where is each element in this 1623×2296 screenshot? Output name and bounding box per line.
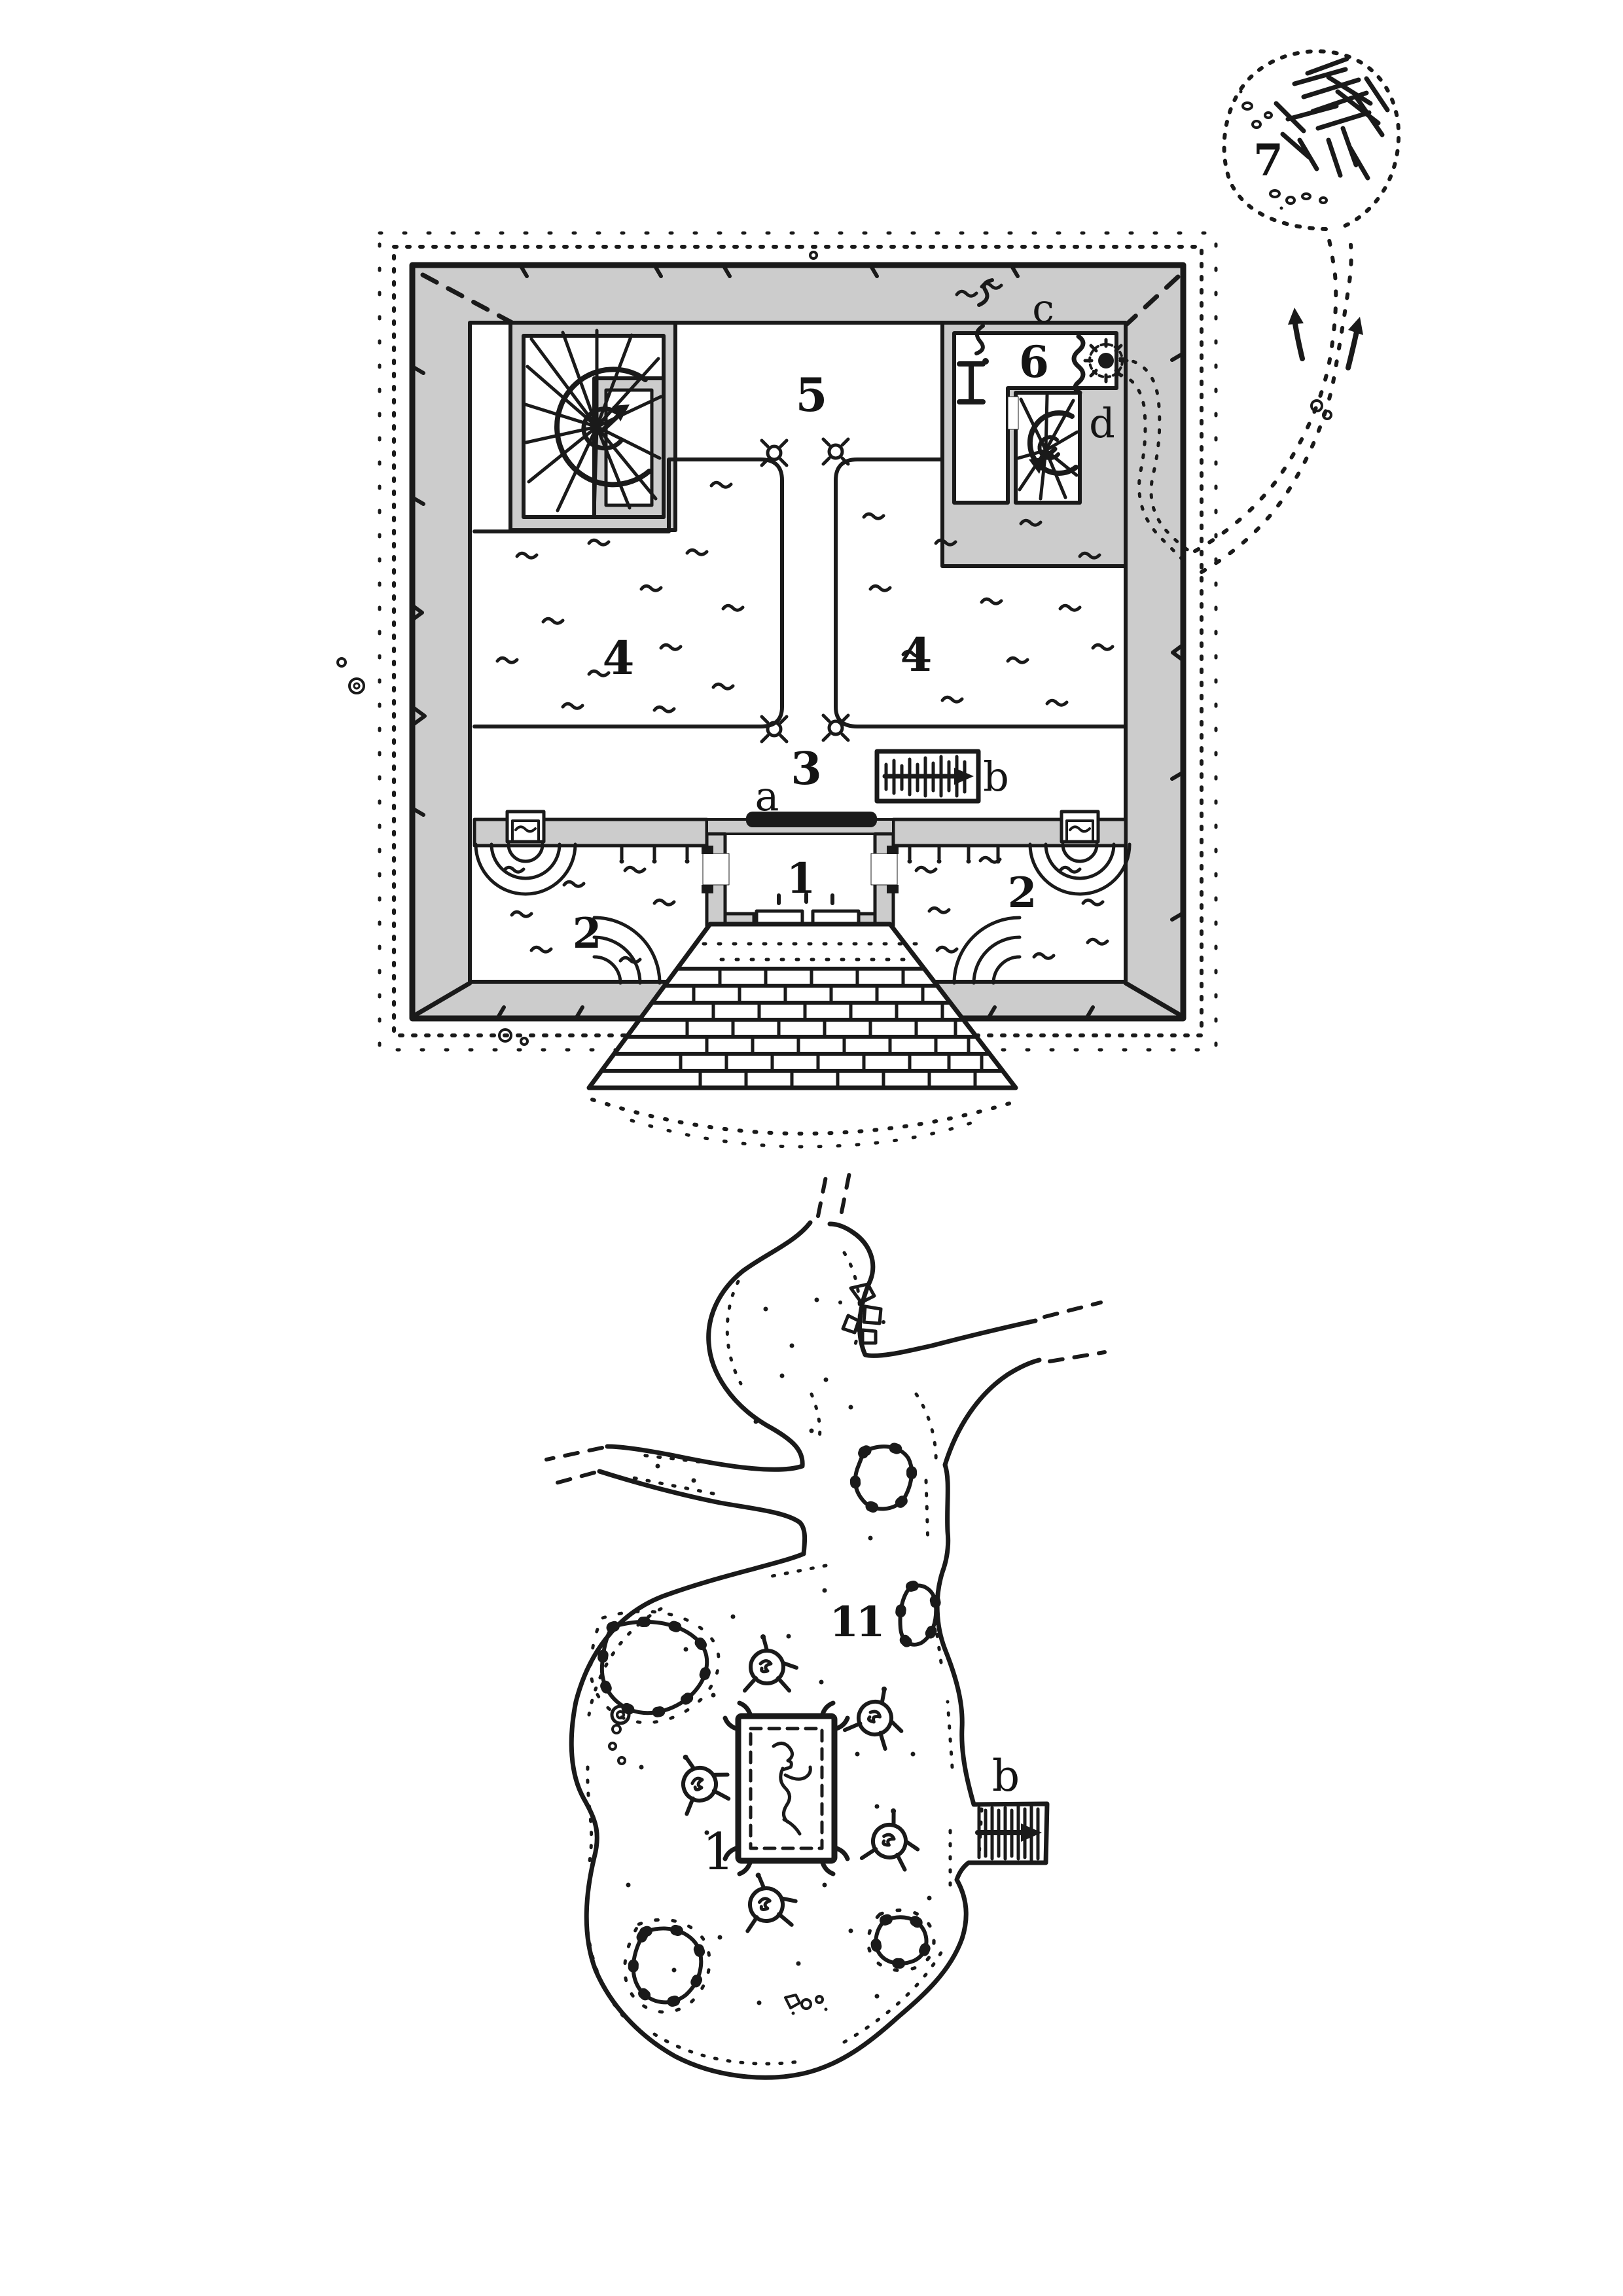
stone-column: [855, 1446, 912, 1509]
room-6-label: 6: [1019, 336, 1049, 387]
room-2-right-label: 2: [1008, 869, 1037, 918]
room-1-label: 1: [787, 854, 816, 903]
bier-with-remains: [725, 1703, 847, 1874]
stone-column: [901, 1585, 936, 1644]
feature-a-label: a: [755, 772, 779, 820]
feature-b-label-cavern: b: [992, 1751, 1020, 1801]
room-4-left-label: 4: [603, 631, 635, 685]
dungeon-maps: 5 6 4 4 3 1 2 2 a b c d: [0, 0, 1623, 2296]
cavern-map: 11 1 b: [546, 1166, 1105, 2077]
boulder: [591, 1611, 719, 1723]
room-4-right-label: 4: [901, 628, 933, 682]
room-5-label: 5: [796, 368, 828, 422]
map-sheet: 5 6 4 4 3 1 2 2 a b c d: [0, 0, 1623, 2296]
spiral-staircase-northwest: [510, 323, 675, 530]
floor-dots: [626, 1298, 932, 2005]
log-pile: [1276, 59, 1387, 178]
cavern-outline: [571, 1223, 1047, 2077]
area-11-label: 11: [829, 1598, 882, 1647]
stairs-b: [877, 751, 978, 801]
wall-stipple: [586, 1253, 982, 2064]
stairs-b-exit: [978, 1806, 1042, 1860]
boulder: [868, 1910, 934, 1971]
trail-arrow-icon: [1288, 308, 1363, 368]
cave-7-label: 7: [1253, 135, 1283, 186]
room-3-label: 3: [791, 743, 821, 795]
feature-c-label: c: [1032, 286, 1054, 332]
bier-1-label: 1: [702, 1823, 735, 1882]
feature-b-label: b: [983, 753, 1009, 800]
room-2-left-label: 2: [573, 909, 602, 958]
temple-map: 5 6 4 4 3 1 2 2 a b c d: [338, 233, 1216, 1147]
feature-d-label: d: [1089, 399, 1115, 447]
cave-7: 7: [1224, 51, 1399, 229]
boulder: [625, 1920, 709, 2012]
